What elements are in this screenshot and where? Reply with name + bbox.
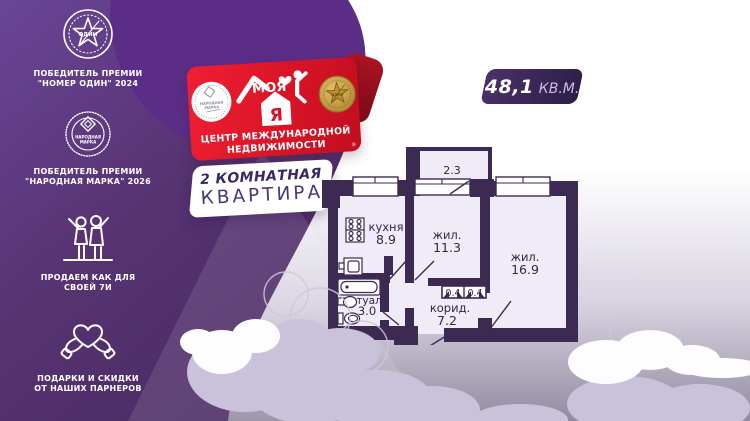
floorplan: 2.3 кухня 8.9 жил. 11.3 жил. 16.9 корид.… [322,130,584,345]
sidebar: ОДИН ПОБЕДИТЕЛЬ ПРЕМИИ "НОМЕР ОДИН" 2024… [0,0,176,421]
family-icon [58,213,118,265]
kitchen-area-label: 8.9 [376,232,396,247]
total-area-badge: 48,1 КВ.М. [480,69,583,104]
kitchen-stove-icon [346,218,364,242]
award-narodnaya-marka: НАРОДНАЯ МАРКА ПОБЕДИТЕЛЬ ПРЕМИИ "НАРОДН… [0,110,176,188]
logo-word: МОЯ [252,80,287,97]
area-unit: КВ.М. [539,81,580,97]
family-caption-line1: ПРОДАЕМ КАК ДЛЯ [41,273,136,283]
gifts-caption-line1: ПОДАРКИ И СКИДКИ [34,374,141,384]
narodnaya-marka-badge-icon: НАРОДНАЯ МАРКА [64,110,112,158]
family-benefit: ПРОДАЕМ КАК ДЛЯ СВОЕЙ 7И [0,213,176,294]
toilet-icon [338,313,360,324]
room1-area-label: 11.3 [433,240,461,255]
promo-poster: ОДИН ПОБЕДИТЕЛЬ ПРЕМИИ "НОМЕР ОДИН" 2024… [0,0,750,421]
closet2-area-label: 0.4 [467,288,482,299]
award1-caption-line1: ПОБЕДИТЕЛЬ ПРЕМИИ [34,69,143,79]
logo-ya: Я [269,105,284,126]
gold-medal-icon: ОДИН [317,74,357,114]
offer-plate: 2 КОМНАТНАЯ КВАРТИРА [189,159,333,218]
award-number-one: ОДИН ПОБЕДИТЕЛЬ ПРЕМИИ "НОМЕР ОДИН" 2024 [0,8,176,90]
hands-holding-heart-icon [59,315,117,367]
family-caption-line2: СВОЕЙ 7И [41,283,136,293]
badge-text: ОДИН [79,32,98,38]
gifts-benefit: ПОДАРКИ И СКИДКИ ОТ НАШИХ ПАРНЕРОВ [0,315,176,395]
brand-medals-row: НАРОДНАЯ МАРКА МОЯ Я [187,62,360,134]
person-figure [293,70,307,102]
narodnaya-marka-medal-icon: НАРОДНАЯ МАРКА [189,80,233,124]
closet1-area-label: 0.4 [445,288,460,299]
gifts-caption-line2: ОТ НАШИХ ПАРНЕРОВ [34,384,141,394]
award2-caption-line1: ПОБЕДИТЕЛЬ ПРЕМИИ [25,167,151,177]
balcony-area-label: 2.3 [443,164,461,177]
bath-area-label: 3.0 [358,304,376,318]
corridor-area-label: 7.2 [437,313,457,328]
bathtub-icon [338,279,380,295]
star-award-badge-icon: ОДИН [62,8,114,60]
award1-caption-line2: "НОМЕР ОДИН" 2024 [34,79,143,89]
award2-caption-line2: "НАРОДНАЯ МАРКА" 2026 [25,177,151,187]
moya-logo: МОЯ Я [232,64,320,131]
room2-area-label: 16.9 [511,262,539,277]
gold-medal-text: ОДИН [331,93,344,98]
badge-text-line2: МАРКА [80,140,97,145]
area-value: 48,1 [485,76,534,98]
